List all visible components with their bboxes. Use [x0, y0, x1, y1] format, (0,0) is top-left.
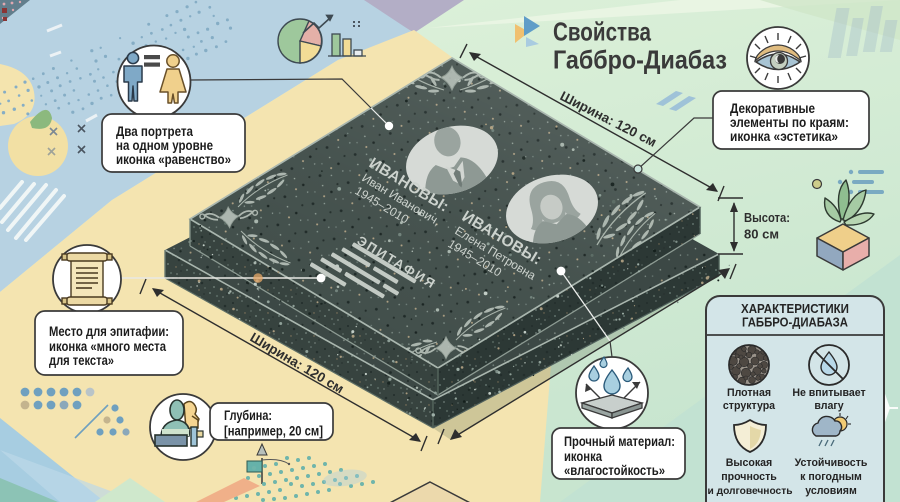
svg-text:условиям: условиям: [805, 485, 857, 497]
svg-text:«влагостойкость»: «влагостойкость»: [564, 463, 665, 478]
svg-text:Место для эпитафии:: Место для эпитафии:: [49, 324, 169, 339]
svg-text:Высота:: Высота:: [744, 210, 790, 225]
svg-text:иконка: иконка: [564, 449, 602, 464]
svg-text:80 см: 80 см: [744, 227, 779, 242]
svg-text:к погодным: к погодным: [800, 471, 862, 483]
svg-text:элементы по краям:: элементы по краям:: [730, 115, 849, 130]
svg-text:Высокая: Высокая: [726, 457, 772, 469]
svg-text:Плотная: Плотная: [727, 387, 771, 399]
svg-text:для текста»: для текста»: [49, 353, 114, 368]
svg-text:[например, 20 см]: [например, 20 см]: [224, 424, 323, 439]
svg-text:Глубина:: Глубина:: [224, 408, 272, 423]
svg-text:и долговечность: и долговечность: [708, 486, 793, 497]
svg-text:прочность: прочность: [721, 471, 777, 483]
svg-text:иконка «эстетика»: иконка «эстетика»: [730, 129, 838, 144]
svg-text:Декоративные: Декоративные: [730, 101, 815, 116]
svg-text:иконка «много места: иконка «много места: [49, 339, 166, 354]
svg-text:на одном уровне: на одном уровне: [116, 138, 213, 153]
svg-text:Габбро-Диабаз: Габбро-Диабаз: [553, 45, 727, 75]
svg-text:Свойства: Свойства: [553, 17, 651, 47]
svg-text:влагу: влагу: [814, 400, 843, 412]
svg-text:Устойчивость: Устойчивость: [795, 457, 868, 469]
svg-text:Не впитывает: Не впитывает: [792, 387, 865, 399]
svg-text:иконка «равенство»: иконка «равенство»: [116, 152, 231, 167]
svg-text:ГАББРО-ДИАБАЗА: ГАББРО-ДИАБАЗА: [742, 315, 849, 330]
svg-text:Прочный материал:: Прочный материал:: [564, 434, 675, 449]
svg-text:Два портрета: Два портрета: [116, 124, 193, 139]
svg-text:структура: структура: [723, 400, 775, 412]
